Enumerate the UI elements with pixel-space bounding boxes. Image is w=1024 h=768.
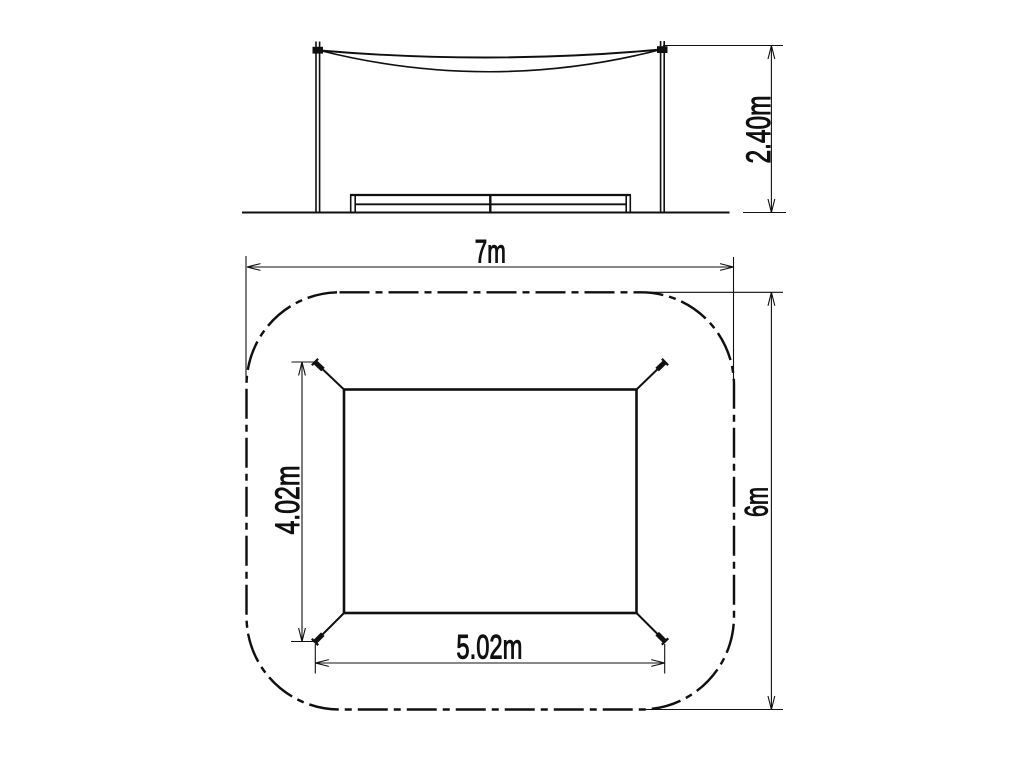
svg-text:6m: 6m bbox=[739, 487, 775, 517]
svg-text:7m: 7m bbox=[475, 234, 506, 270]
svg-text:4.02m: 4.02m bbox=[269, 466, 307, 535]
svg-text:2.40m: 2.40m bbox=[740, 96, 778, 164]
svg-text:5.02m: 5.02m bbox=[456, 629, 522, 667]
